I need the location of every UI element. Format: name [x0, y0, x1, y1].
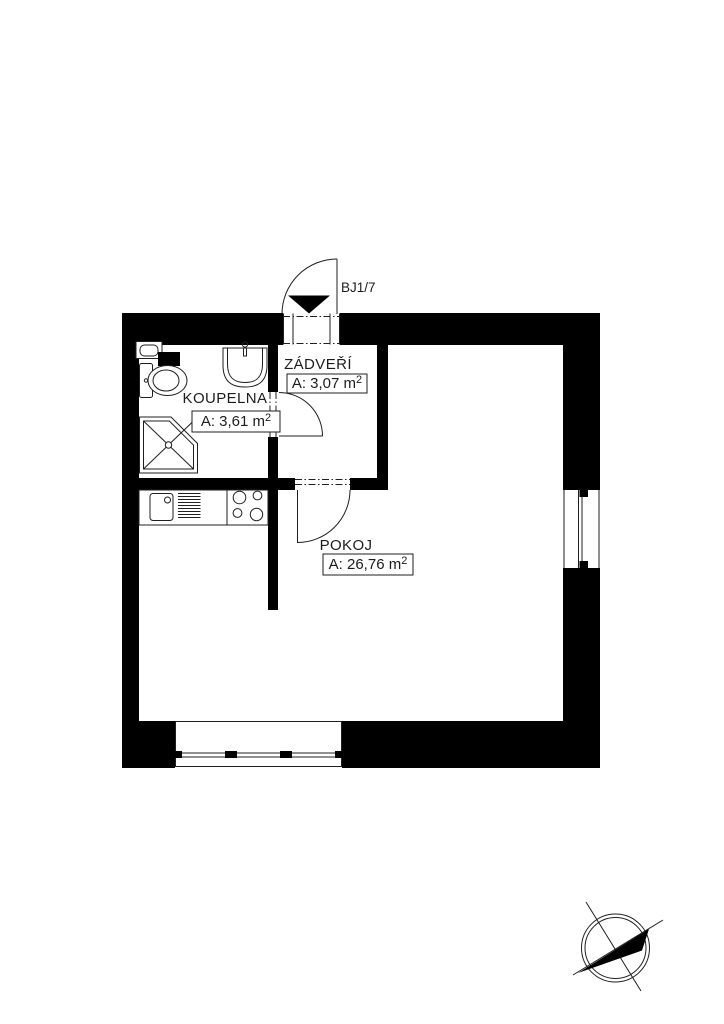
wall-bottom-right: [342, 721, 600, 768]
floor-plan-drawing: BJ1/7: [0, 0, 724, 1024]
wall-bathroom-bottom: [139, 478, 295, 490]
wall-top-left: [122, 313, 283, 345]
washbasin-outer: [223, 348, 267, 387]
toilet: [140, 364, 188, 398]
window-bottom-mullion: [225, 751, 237, 758]
compass-rose: [573, 902, 663, 991]
window-bottom: [175, 721, 342, 767]
area-exponent: 2: [265, 412, 271, 424]
bathroom-door-swing-arc: [279, 393, 323, 437]
shower: [140, 417, 198, 473]
wall-hall-room-right: [377, 345, 388, 478]
area-exponent: 2: [401, 555, 407, 567]
room-name-pokoj: POKOJ: [320, 537, 373, 554]
bathroom-fixtures: [136, 342, 267, 474]
wall-duct-stub: [158, 352, 180, 366]
wall-right-upper: [563, 345, 600, 490]
wall-left: [122, 345, 139, 721]
area-value: A: 26,76 m: [329, 556, 402, 573]
floor-plan-page: BJ1/7: [0, 0, 724, 1024]
entrance-door-label: BJ1/7: [341, 280, 376, 295]
window-right-mullion: [580, 490, 589, 497]
area-text-koupelna: A: 3,61 m2: [201, 412, 271, 430]
entrance-direction-marker: [288, 296, 330, 314]
room-name-koupelna: KOUPELNA: [183, 390, 268, 407]
room-name-zadveri: ZÁDVEŘÍ: [284, 356, 352, 373]
window-right: [564, 490, 599, 568]
wall-top-right: [340, 313, 600, 345]
area-text-pokoj: A: 26,76 m2: [329, 555, 408, 573]
wall-bottom-left: [122, 721, 175, 768]
area-exponent: 2: [356, 374, 362, 386]
room-label-koupelna: KOUPELNA A: 3,61 m2: [183, 390, 280, 432]
window-bottom-mullion: [335, 751, 342, 758]
room-label-pokoj: POKOJ A: 26,76 m2: [320, 537, 413, 575]
window-right-mullion: [580, 561, 589, 568]
shower-drain: [165, 442, 171, 448]
window-bottom-mullion: [175, 751, 182, 758]
wall-bathroom-hall-upper: [268, 345, 278, 392]
kitchen-sink-faucet: [165, 497, 171, 503]
wall-kitchen-room-stub: [268, 437, 278, 610]
window-bottom-mullion: [280, 751, 292, 758]
room-door: [295, 480, 350, 544]
area-value: A: 3,61 m: [201, 413, 265, 430]
kitchen-fixtures: [139, 490, 268, 525]
wall-right-lower: [563, 568, 600, 721]
washbasin: [223, 342, 267, 387]
area-value: A: 3,07 m: [292, 375, 356, 392]
area-text-zadveri: A: 3,07 m2: [292, 374, 362, 392]
wall-hall-bottom-right: [350, 478, 388, 490]
room-label-zadveri: ZÁDVEŘÍ A: 3,07 m2: [284, 356, 367, 393]
room-door-swing-arc: [298, 490, 351, 543]
